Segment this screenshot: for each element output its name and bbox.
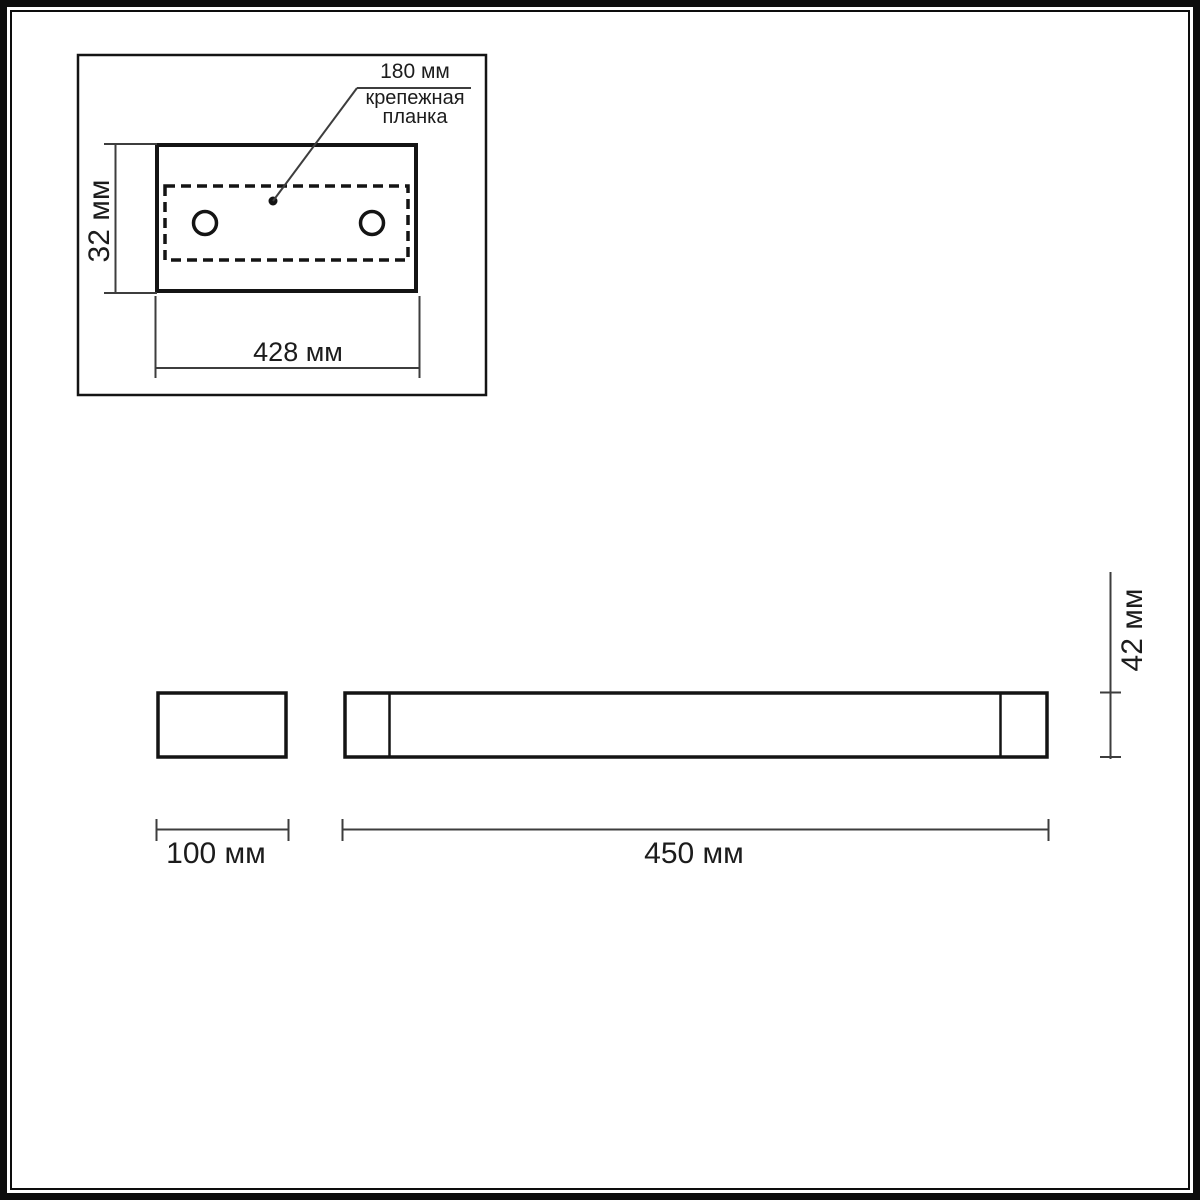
fixture-dimension-diagram: 180 мм крепежная планка 32 мм 428 мм 100… — [0, 0, 1200, 1200]
side-view-height-label: 42 мм — [1116, 589, 1150, 672]
drawing-lines — [0, 0, 1200, 1200]
top-view-height-label: 32 мм — [83, 180, 117, 263]
mounting-plate-label: крепежная планка — [352, 89, 478, 127]
side-view-outline — [345, 693, 1047, 757]
mounting-hole-left — [194, 212, 217, 235]
end-view-depth-label: 100 мм — [116, 837, 316, 871]
side-view-length-label: 450 мм — [594, 837, 794, 871]
top-view-width-label: 428 мм — [198, 337, 398, 368]
mounting-hole-right — [361, 212, 384, 235]
mounting-width-label: 180 мм — [352, 60, 478, 84]
end-view-outline — [158, 693, 286, 757]
